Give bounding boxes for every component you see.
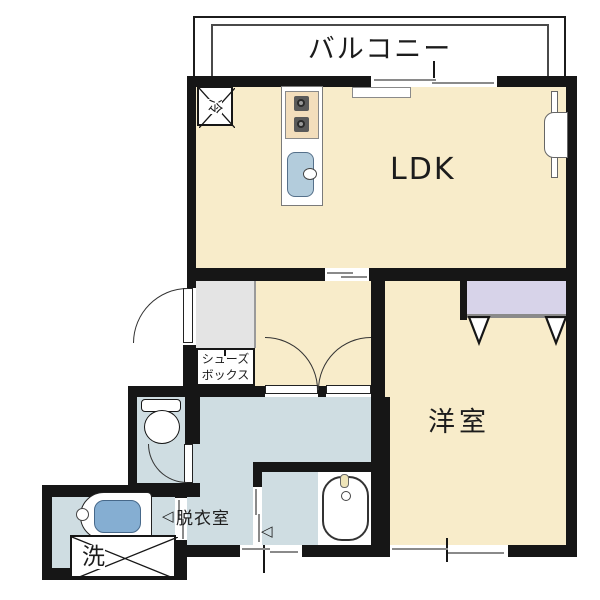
washer-label: 洗: [82, 545, 105, 569]
sink-faucet-icon: [303, 168, 317, 180]
closet-door-pull-icon: [467, 316, 491, 346]
wall-washroom-right-upper: [175, 487, 187, 498]
wall-bottom-dressing-left: [187, 545, 240, 557]
wall-top-right: [497, 76, 577, 87]
closet: [467, 281, 566, 318]
wall-hall-western: [371, 281, 385, 397]
wall-bottom-bathroom: [302, 545, 390, 557]
genkan-floor: [196, 281, 255, 348]
wall-toilet-right: [185, 397, 200, 444]
refrigerator-label: 冷: [207, 99, 222, 114]
closet-door-pull-icon: [544, 316, 568, 346]
wall-bathroom-top: [253, 462, 371, 472]
bathtub-faucet-icon: [340, 474, 349, 488]
wall-ldk-bottom-left: [187, 268, 325, 281]
dressing-floor-mid: [200, 462, 253, 497]
window-tick-bottom: [446, 538, 448, 562]
washroom-slide-arrow-icon: ◁: [162, 509, 174, 524]
wall-washroom-left: [42, 485, 52, 580]
entry-door-arc: [133, 288, 188, 343]
ldk-floor: [196, 87, 566, 268]
stove-burner-icon: [294, 117, 309, 132]
dressing-room-label: 脱衣室: [176, 504, 230, 529]
shoe-box-label-line1: シューズ: [196, 351, 255, 367]
floorplan: バルコニー: [0, 0, 600, 600]
opening-ldk-hall: [325, 268, 369, 281]
wall-toilet-left: [128, 386, 137, 497]
wall-left-upper: [187, 76, 196, 288]
toilet-bowl-icon: [144, 410, 180, 444]
refrigerator-space: 冷: [197, 86, 233, 126]
ldk-right-door-handle: [544, 112, 568, 158]
western-room-label: 洋室: [428, 400, 490, 439]
window-sill-ldk: [352, 87, 411, 98]
wall-bottom-western-right: [508, 545, 577, 557]
bathroom-slide-arrow-icon: ◁: [261, 524, 273, 539]
dressing-floor-upper: [200, 397, 371, 462]
stove-burner-icon: [294, 96, 309, 111]
washbasin-faucet-icon: [76, 508, 89, 521]
wall-left-shoebox: [183, 345, 196, 388]
genkan-step-line: [254, 281, 256, 348]
wall-bathdoor-stub: [253, 472, 262, 487]
washbasin-bowl: [94, 500, 141, 533]
ldk-label: LDK: [390, 152, 456, 187]
washer-space: 洗: [70, 535, 176, 578]
shoe-box-label-line2: ボックス: [196, 367, 255, 383]
window-western-bottom: [390, 545, 508, 557]
closet-left-wall: [460, 281, 467, 320]
wall-ldk-bottom-right: [369, 268, 577, 281]
balcony-label: バルコニー: [211, 27, 549, 66]
wall-dressing-western: [371, 397, 390, 557]
wall-hall-bottom: [128, 386, 265, 397]
bathtub-drain-icon: [341, 491, 351, 501]
